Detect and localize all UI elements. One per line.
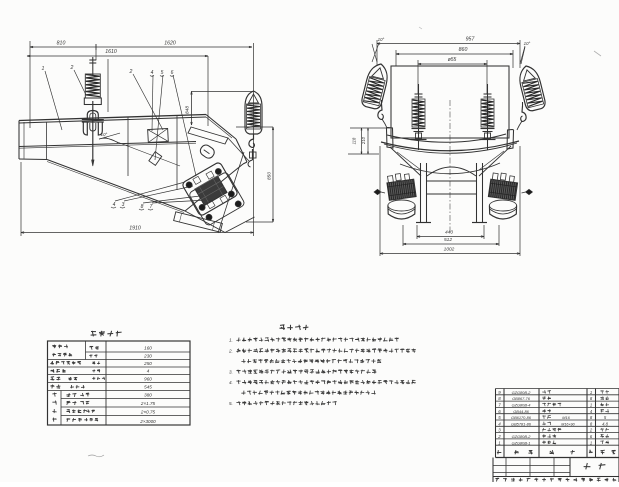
svg-text:1.: 1. <box>229 338 233 343</box>
svg-text:10°: 10° <box>101 132 108 137</box>
svg-text:5.: 5. <box>229 401 233 406</box>
svg-text:2: 2 <box>129 69 133 75</box>
svg-text:4.8: 4.8 <box>602 421 608 426</box>
svg-text:848: 848 <box>185 106 191 114</box>
svg-text:7: 7 <box>150 204 153 210</box>
svg-text:GB44-86: GB44-86 <box>513 409 529 414</box>
svg-text:GZG80B-4: GZG80B-4 <box>512 403 532 408</box>
svg-text:GB6170-86: GB6170-86 <box>511 415 532 420</box>
svg-text:GZG80B-2: GZG80B-2 <box>512 434 532 439</box>
svg-text:1: 1 <box>42 66 45 72</box>
svg-text:M16×90: M16×90 <box>561 422 575 426</box>
svg-text:850: 850 <box>267 172 273 180</box>
svg-text:2: 2 <box>497 434 501 439</box>
svg-text:1610: 1610 <box>105 49 117 55</box>
svg-text:1620: 1620 <box>164 41 176 47</box>
svg-text:810: 810 <box>57 41 66 47</box>
svg-text:GZG80B-1: GZG80B-1 <box>512 440 531 445</box>
svg-text:380: 380 <box>144 393 152 398</box>
svg-text:1: 1 <box>590 403 592 408</box>
svg-text:3.: 3. <box>229 370 233 375</box>
svg-text:2×0.75: 2×0.75 <box>140 410 156 415</box>
svg-text:957: 957 <box>466 37 476 43</box>
svg-text:3: 3 <box>122 202 125 208</box>
svg-text:2: 2 <box>70 65 74 71</box>
svg-text:118: 118 <box>352 137 357 144</box>
svg-text:2.: 2. <box>228 349 233 354</box>
svg-text:250: 250 <box>143 361 152 366</box>
svg-text:GB867-76: GB867-76 <box>512 396 531 401</box>
svg-text:GZG80B-2: GZG80B-2 <box>512 390 532 395</box>
svg-text:8: 8 <box>141 204 144 210</box>
svg-text:2×1.75: 2×1.75 <box>140 401 156 406</box>
svg-text:1: 1 <box>590 440 592 445</box>
svg-text:4: 4 <box>147 369 150 374</box>
svg-text:10°: 10° <box>378 37 385 42</box>
svg-text:1002: 1002 <box>444 247 455 253</box>
svg-text:160: 160 <box>144 346 152 351</box>
svg-text:210: 210 <box>361 136 366 145</box>
svg-text:1: 1 <box>590 390 592 395</box>
svg-text:10°: 10° <box>524 41 531 46</box>
svg-text:2×3000: 2×3000 <box>139 419 156 424</box>
svg-text:4: 4 <box>113 202 116 208</box>
svg-text:ø55: ø55 <box>448 57 457 63</box>
svg-text:512: 512 <box>444 237 452 243</box>
svg-text:GB5781-86: GB5781-86 <box>511 421 532 426</box>
svg-text:860: 860 <box>459 47 468 53</box>
svg-text:M16: M16 <box>562 415 570 420</box>
svg-text:1910: 1910 <box>129 226 141 232</box>
svg-text:4.: 4. <box>229 380 233 385</box>
svg-text:545: 545 <box>144 385 152 390</box>
svg-text:960: 960 <box>144 377 152 382</box>
svg-text:440: 440 <box>445 230 453 236</box>
svg-text:230: 230 <box>143 354 152 359</box>
